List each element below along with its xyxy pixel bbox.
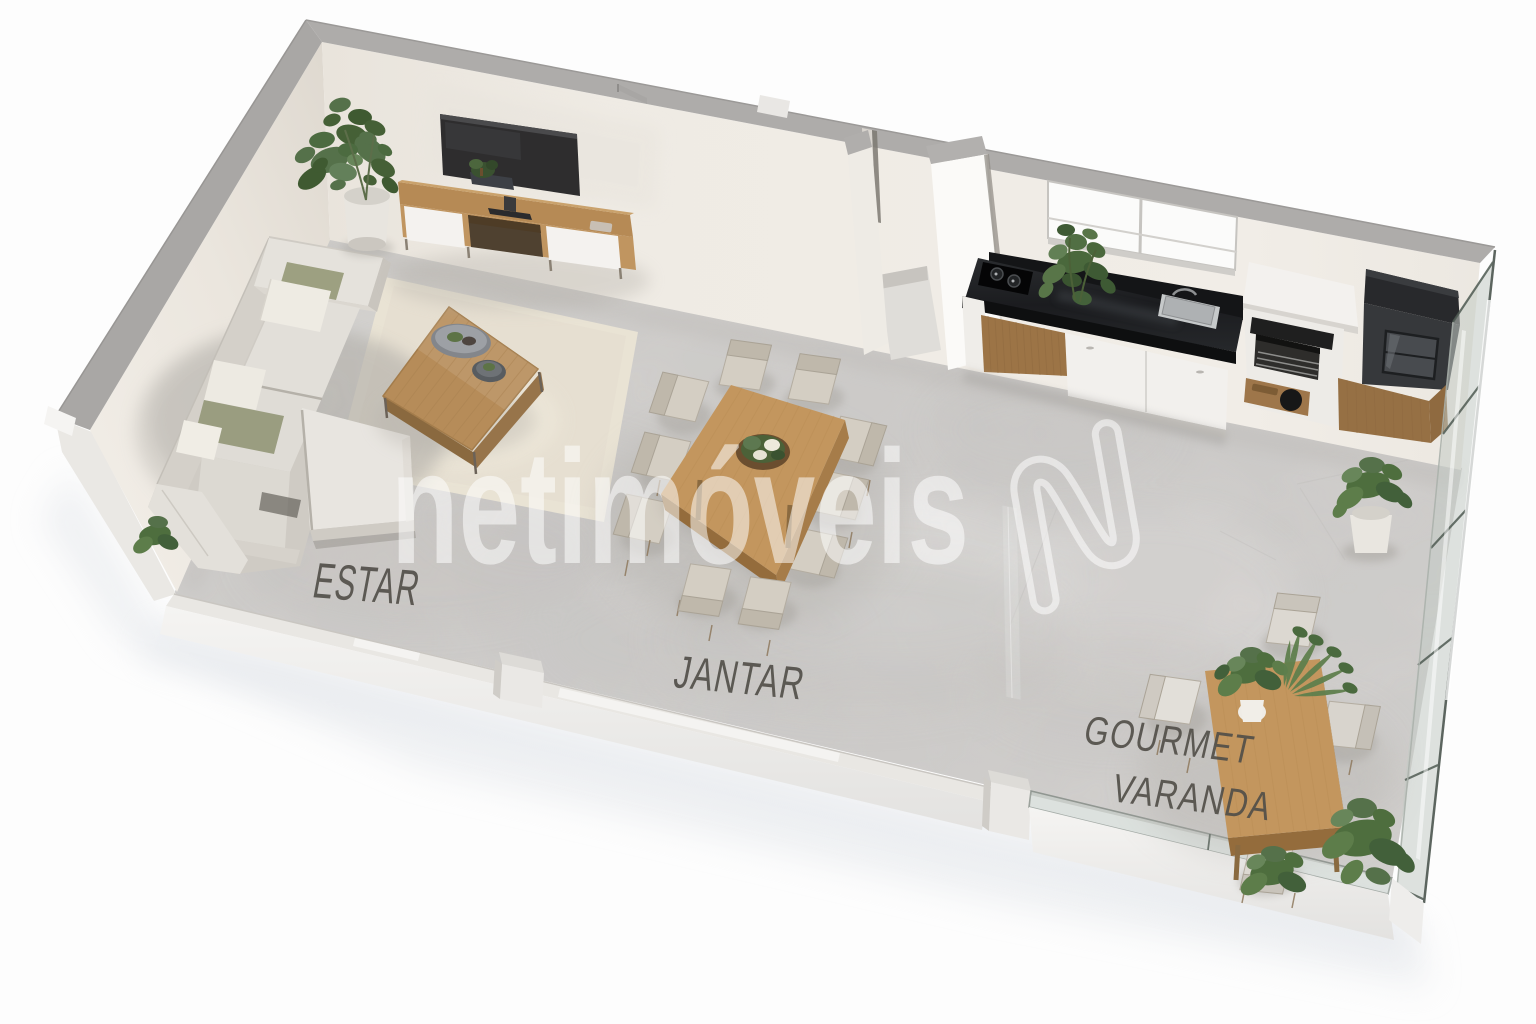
svg-text:netimóveis: netimóveis [391, 417, 969, 598]
